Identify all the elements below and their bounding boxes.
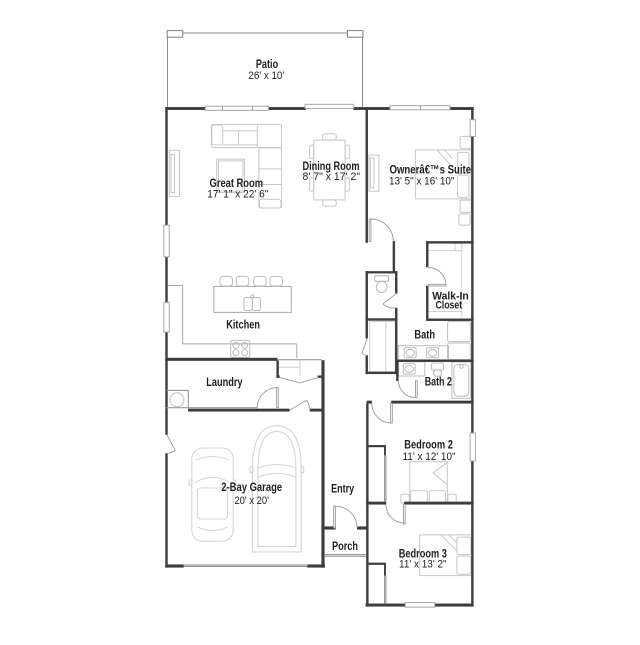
svg-text:Closet: Closet [436, 300, 463, 312]
svg-text:20' x 20': 20' x 20' [234, 495, 269, 507]
svg-text:Bath: Bath [414, 328, 435, 342]
svg-text:Kitchen: Kitchen [226, 318, 260, 332]
svg-text:Entry: Entry [331, 481, 354, 495]
svg-text:26' x 10': 26' x 10' [248, 70, 284, 82]
svg-text:2-Bay Garage: 2-Bay Garage [221, 480, 282, 494]
svg-text:Laundry: Laundry [206, 375, 243, 389]
svg-text:8' 7" x 17' 2": 8' 7" x 17' 2" [303, 171, 361, 183]
svg-text:Ownerâ€™s Suite: Ownerâ€™s Suite [390, 163, 472, 177]
svg-text:Bath 2: Bath 2 [425, 375, 452, 389]
svg-text:Porch: Porch [332, 539, 358, 553]
svg-text:13' 5" x 16' 10": 13' 5" x 16' 10" [389, 176, 455, 188]
svg-text:11' x 13' 2": 11' x 13' 2" [399, 559, 447, 571]
svg-text:17' 1" x 22' 6": 17' 1" x 22' 6" [207, 189, 268, 201]
svg-text:11' x 12' 10": 11' x 12' 10" [403, 451, 456, 463]
svg-text:Bedroom 2: Bedroom 2 [404, 438, 453, 452]
